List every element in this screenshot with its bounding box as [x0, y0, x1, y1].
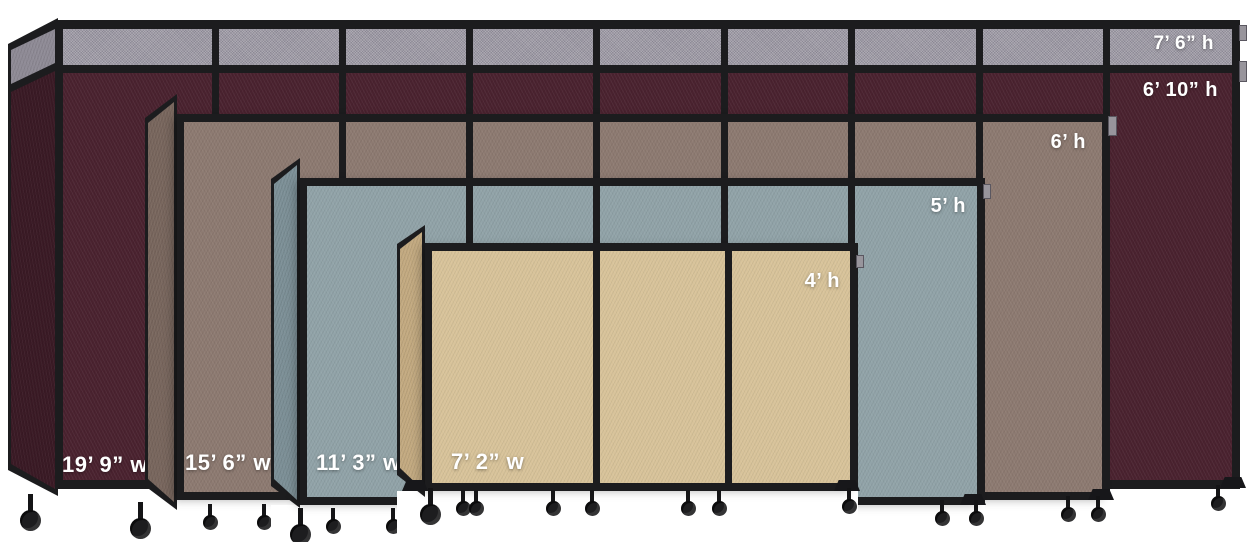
- caster-wheel: [544, 490, 562, 516]
- frame-bar: [425, 243, 858, 251]
- sand-main-run: 4’ h 7’ 2” w: [425, 243, 858, 491]
- frame-post: [425, 243, 432, 491]
- frame-post: [725, 243, 732, 491]
- caster-wheel: [710, 490, 728, 516]
- partition-layer-sand: 4’ h 7’ 2” w: [0, 0, 1248, 542]
- caster-wheel: [467, 490, 485, 516]
- frame-post: [593, 243, 600, 491]
- sand-end-fabric: [397, 225, 425, 501]
- caster-wheel: [583, 490, 601, 516]
- width-label-7ft2: 7’ 2” w: [451, 449, 524, 475]
- caster-wheel: [418, 488, 442, 525]
- height-label-4ft: 4’ h: [805, 269, 840, 293]
- sand-end-panel: [397, 225, 425, 501]
- frame-post: [850, 243, 858, 491]
- caster-wheel: [679, 490, 697, 516]
- hinge-bracket: [856, 255, 864, 268]
- caster-wheel: [840, 488, 858, 514]
- room-divider-size-comparison: 7’ 6” h 6’ 10” h 19’ 9” w: [0, 0, 1248, 542]
- frame-bar: [425, 483, 858, 491]
